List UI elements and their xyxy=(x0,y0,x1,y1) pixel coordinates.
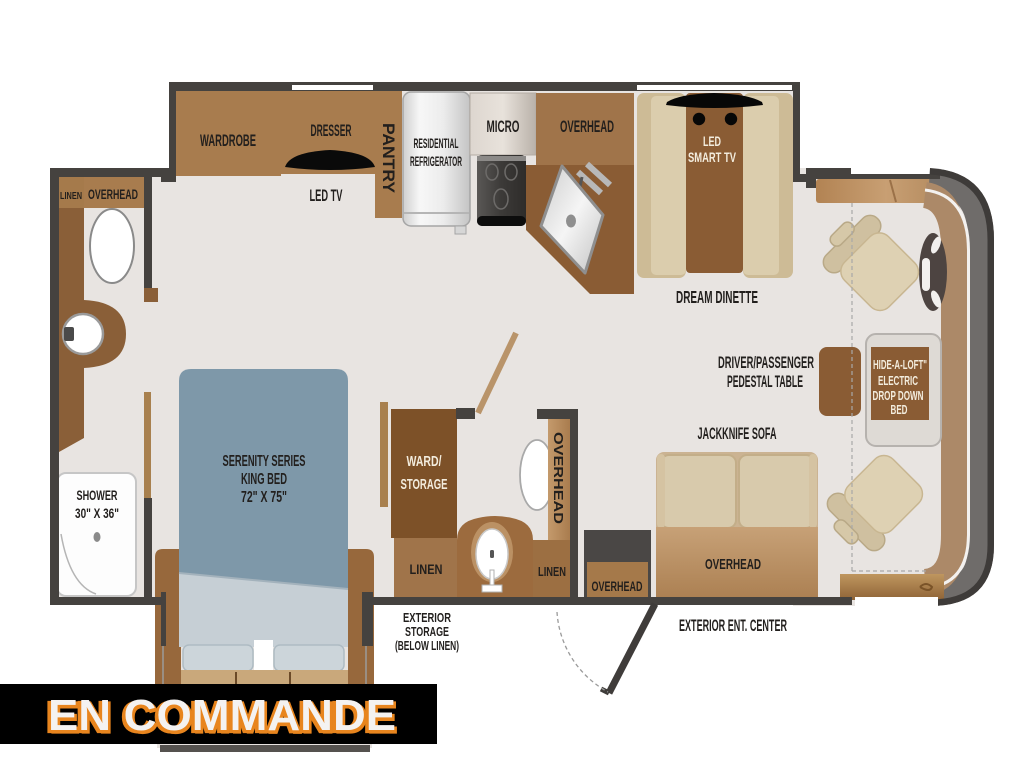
svg-text:SMART TV: SMART TV xyxy=(688,149,736,165)
svg-text:(BELOW LINEN): (BELOW LINEN) xyxy=(395,639,459,653)
svg-text:ELECTRIC: ELECTRIC xyxy=(878,373,918,388)
svg-text:JACKKNIFE SOFA: JACKKNIFE SOFA xyxy=(698,425,777,443)
svg-text:72" X 75": 72" X 75" xyxy=(241,489,287,506)
svg-text:30" X 36": 30" X 36" xyxy=(75,506,119,521)
svg-text:DROP DOWN: DROP DOWN xyxy=(873,388,924,403)
svg-text:LINEN: LINEN xyxy=(410,561,443,577)
svg-text:DREAM DINETTE: DREAM DINETTE xyxy=(676,287,758,307)
svg-text:RESIDENTIAL: RESIDENTIAL xyxy=(414,135,459,151)
svg-text:PEDESTAL TABLE: PEDESTAL TABLE xyxy=(727,373,803,391)
svg-text:EXTERIOR ENT. CENTER: EXTERIOR ENT. CENTER xyxy=(679,617,787,635)
svg-text:SERENITY SERIES: SERENITY SERIES xyxy=(223,453,306,470)
svg-text:MICRO: MICRO xyxy=(487,117,520,136)
svg-text:OVERHEAD: OVERHEAD xyxy=(88,187,138,202)
svg-text:BED: BED xyxy=(891,402,908,417)
svg-text:OVERHEAD: OVERHEAD xyxy=(705,556,761,573)
svg-text:OVERHEAD: OVERHEAD xyxy=(551,432,565,524)
svg-text:STORAGE: STORAGE xyxy=(405,625,449,639)
svg-text:EN COMMANDE: EN COMMANDE xyxy=(48,691,396,740)
svg-text:LINEN: LINEN xyxy=(60,190,82,202)
svg-text:EXTERIOR: EXTERIOR xyxy=(403,611,451,625)
svg-text:SHOWER: SHOWER xyxy=(77,488,118,503)
svg-text:PANTRY: PANTRY xyxy=(379,123,398,194)
svg-text:LINEN: LINEN xyxy=(538,565,566,579)
svg-text:DRIVER/PASSENGER: DRIVER/PASSENGER xyxy=(718,354,814,372)
svg-text:WARD/: WARD/ xyxy=(407,453,443,470)
svg-text:HIDE-A-LOFT": HIDE-A-LOFT" xyxy=(873,357,927,372)
svg-text:OVERHEAD: OVERHEAD xyxy=(560,117,614,136)
svg-text:DRESSER: DRESSER xyxy=(311,121,352,140)
svg-text:OVERHEAD: OVERHEAD xyxy=(592,579,643,594)
svg-text:KING BED: KING BED xyxy=(241,471,287,488)
svg-text:LED: LED xyxy=(703,133,721,149)
svg-text:WARDROBE: WARDROBE xyxy=(200,131,256,150)
svg-text:REFRIGERATOR: REFRIGERATOR xyxy=(410,153,462,169)
svg-text:LED TV: LED TV xyxy=(310,186,343,205)
svg-text:STORAGE: STORAGE xyxy=(401,476,448,493)
